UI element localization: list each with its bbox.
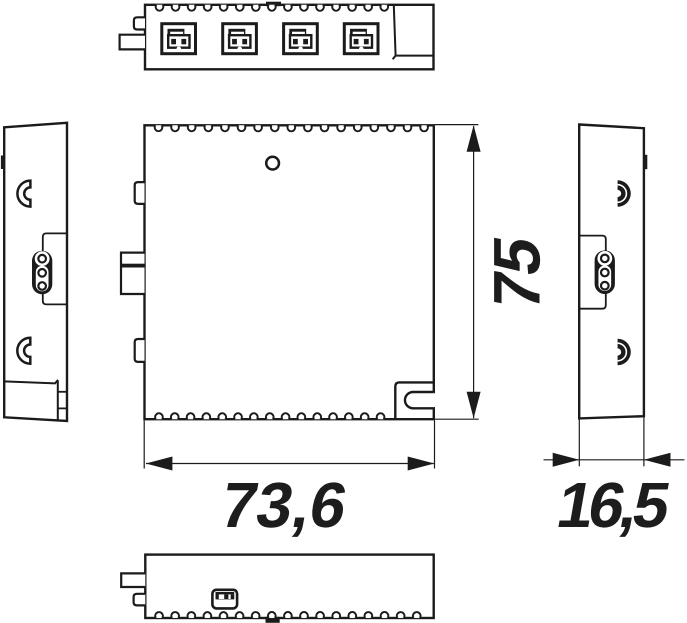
svg-text:16,5: 16,5: [552, 469, 675, 540]
svg-text:73,6: 73,6: [215, 469, 352, 540]
svg-text:75: 75: [481, 232, 554, 315]
